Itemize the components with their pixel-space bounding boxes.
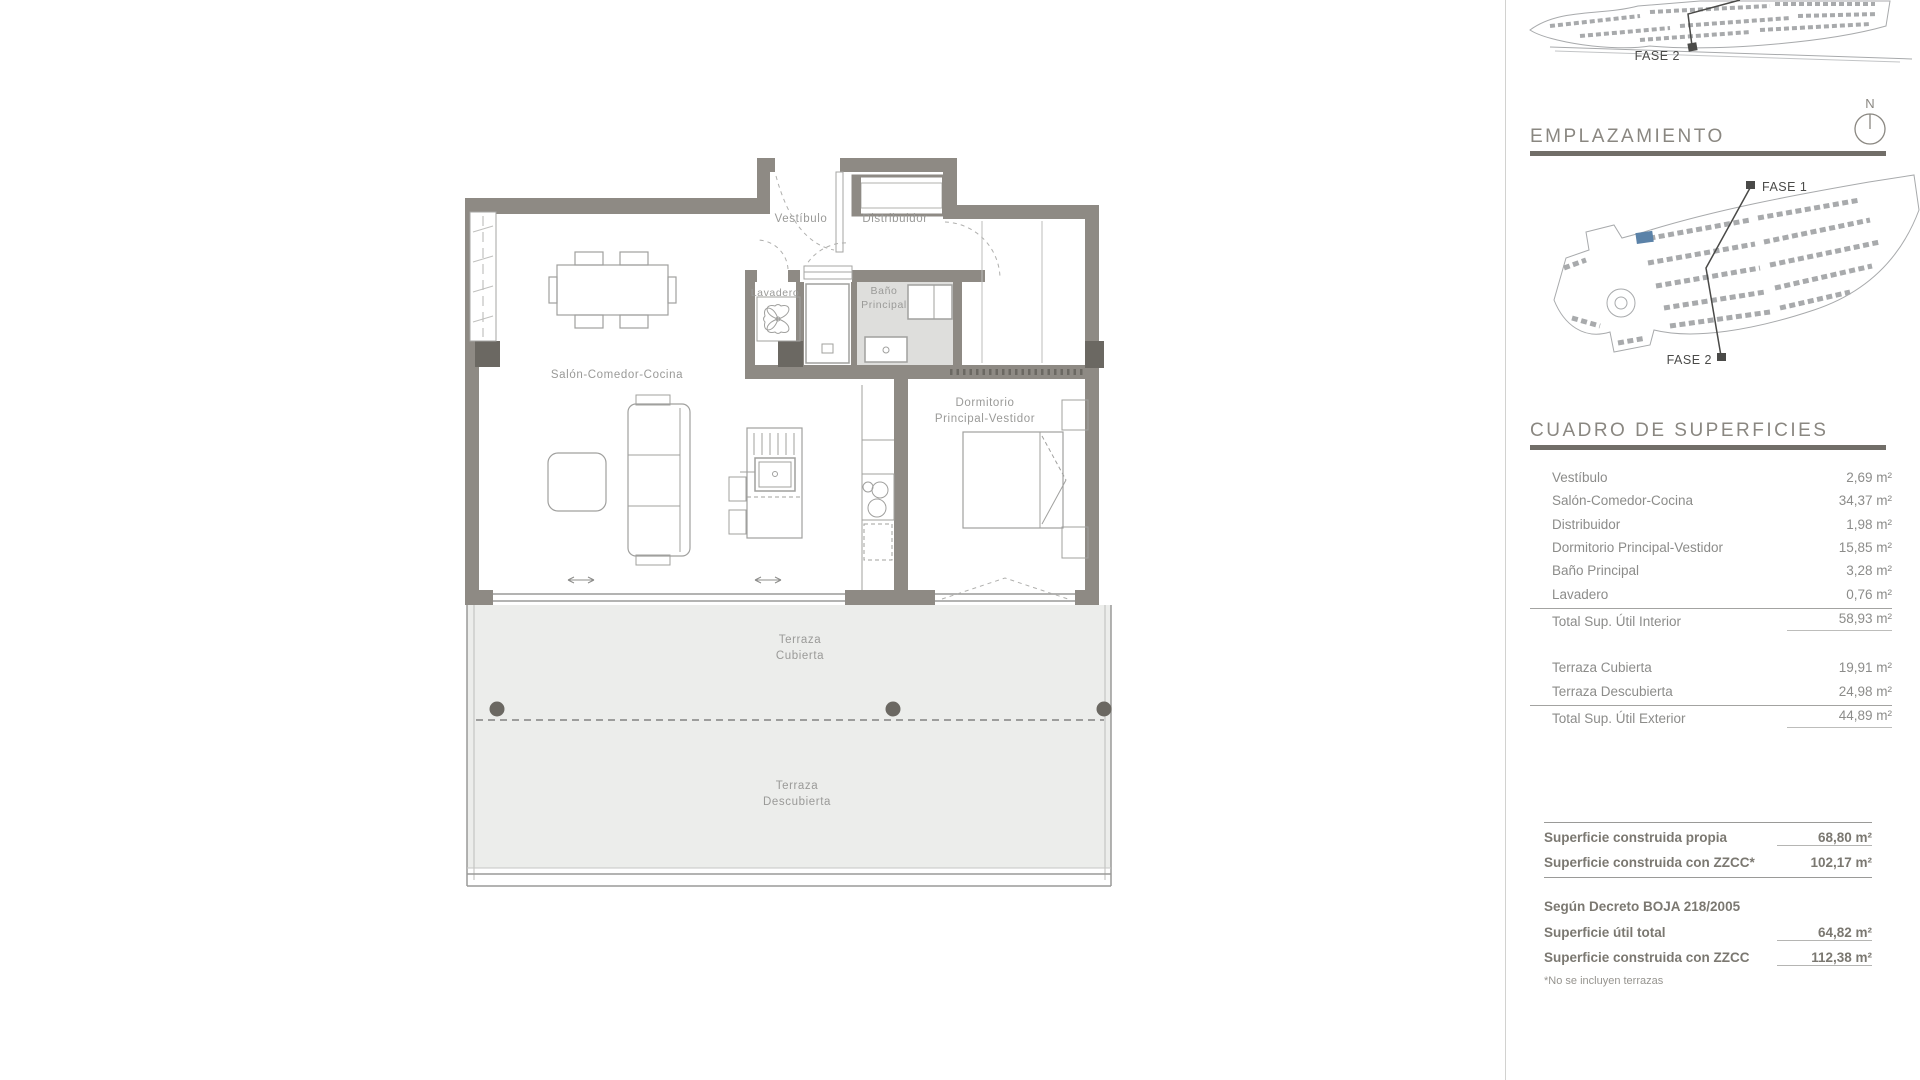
top-site-map: FASE 2	[1520, 0, 1920, 82]
entrance-door	[853, 176, 950, 215]
construida-value: 68,80 m²	[1777, 830, 1872, 846]
site-map-fase2-label: FASE 2	[1667, 353, 1712, 367]
total-label: Total Sup. Útil Interior	[1552, 612, 1681, 629]
decreto-heading: Según Decreto BOJA 218/2005	[1544, 899, 1740, 914]
coffee-table	[548, 453, 606, 511]
label-dormitorio-1: Dormitorio	[955, 397, 1014, 409]
shower-tray	[806, 284, 849, 363]
highlighted-unit	[1635, 231, 1653, 244]
construida-row: Superficie construida propia 68,80 m²	[1544, 825, 1872, 850]
floor-plan: Vestíbulo Distribuidor Lavadero Baño Pri…	[0, 0, 1505, 1080]
row-value: 34,37 m²	[1839, 493, 1892, 508]
row-value: 24,98 m²	[1839, 684, 1892, 699]
kitchen-counter	[862, 385, 894, 590]
decreto-value: 112,38 m²	[1777, 950, 1872, 966]
row-value: 3,28 m²	[1846, 563, 1892, 578]
table-row: Distribuidor 1,98 m²	[1530, 513, 1892, 536]
row-value: 1,98 m²	[1846, 517, 1892, 532]
dining-table	[549, 252, 676, 328]
table-row: Vestíbulo 2,69 m²	[1530, 466, 1892, 489]
label-distribuidor: Distribuidor	[862, 213, 927, 225]
decreto-label: Superficie construida con ZZCC	[1544, 950, 1750, 965]
table-row: Dormitorio Principal-Vestidor 15,85 m²	[1530, 536, 1892, 559]
construida-row: Superficie construida con ZZCC* 102,17 m…	[1544, 850, 1872, 875]
row-value: 19,91 m²	[1839, 660, 1892, 675]
site-map: FASE 1 FASE 2	[1520, 168, 1920, 396]
label-bano-1: Baño	[871, 285, 898, 297]
row-value: 0,76 m²	[1846, 587, 1892, 602]
label-lavadero: Lavadero	[751, 287, 800, 299]
row-label: Terraza Cubierta	[1552, 660, 1652, 675]
row-value: 2,69 m²	[1846, 470, 1892, 485]
label-vestibulo: Vestíbulo	[775, 213, 828, 225]
north-compass: N	[1850, 96, 1890, 156]
cuadro-underline	[1530, 445, 1886, 450]
row-label: Distribuidor	[1552, 517, 1620, 532]
cuadro-title: CUADRO DE SUPERFICIES	[1530, 420, 1828, 442]
vestibulo-door	[776, 172, 843, 252]
terrace-area	[467, 605, 1112, 886]
construida-value: 102,17 m²	[1777, 855, 1872, 870]
sidebar: FASE 2 N EMPLAZAMIENTO	[1506, 0, 1920, 1080]
table-row: Terraza Cubierta 19,91 m²	[1530, 656, 1892, 679]
row-label: Baño Principal	[1552, 563, 1639, 578]
pillars	[475, 341, 1104, 368]
top-map-fase2-label: FASE 2	[1635, 49, 1680, 63]
row-label: Salón-Comedor-Cocina	[1552, 493, 1693, 508]
construida-label: Superficie construida con ZZCC*	[1544, 855, 1755, 870]
surfaces-table: Vestíbulo 2,69 m² Salón-Comedor-Cocina 3…	[1530, 466, 1892, 729]
decreto-value: 64,82 m²	[1777, 925, 1872, 941]
total-label: Total Sup. Útil Exterior	[1552, 709, 1686, 726]
washing-machine	[757, 297, 800, 341]
vestidor-closet	[982, 221, 1042, 363]
left-window	[470, 212, 496, 341]
slide-arrows	[568, 577, 781, 583]
sliding-doors	[493, 594, 1075, 601]
terrace-column	[1097, 702, 1112, 717]
footnote: *No se incluyen terrazas	[1544, 975, 1663, 987]
construida-label: Superficie construida propia	[1544, 830, 1727, 845]
construida-block: Superficie construida propia 68,80 m² Su…	[1544, 822, 1872, 878]
decreto-label: Superficie útil total	[1544, 925, 1666, 940]
decreto-row: Superficie útil total 64,82 m²	[1544, 920, 1872, 945]
total-value: 44,89 m²	[1787, 706, 1892, 728]
plan-sheet: Vestíbulo Distribuidor Lavadero Baño Pri…	[0, 0, 1920, 1080]
label-terraza-descubierta-1: Terraza	[776, 780, 819, 792]
table-row: Lavadero 0,76 m²	[1530, 582, 1892, 605]
table-row: Salón-Comedor-Cocina 34,37 m²	[1530, 489, 1892, 512]
north-label: N	[1850, 96, 1890, 111]
bedroom-window-swing	[942, 578, 1068, 599]
table-row: Baño Principal 3,28 m²	[1530, 559, 1892, 582]
row-label: Dormitorio Principal-Vestidor	[1552, 540, 1723, 555]
label-terraza-descubierta-2: Descubierta	[763, 796, 831, 808]
terrace-column	[490, 702, 505, 717]
label-bano-2: Principal	[861, 299, 907, 311]
sofa	[628, 395, 690, 565]
label-terraza-cubierta-1: Terraza	[779, 634, 822, 646]
table-row: Terraza Descubierta 24,98 m²	[1530, 679, 1892, 702]
label-terraza-cubierta-2: Cubierta	[776, 650, 824, 662]
total-value: 58,93 m²	[1787, 609, 1892, 631]
kitchen-island	[729, 428, 802, 538]
emplazamiento-underline	[1530, 151, 1886, 156]
total-interior-row: Total Sup. Útil Interior 58,93 m²	[1530, 608, 1892, 632]
total-exterior-row: Total Sup. Útil Exterior 44,89 m²	[1530, 705, 1892, 729]
lavadero-door-arc	[757, 240, 788, 269]
terrace-column	[886, 702, 901, 717]
label-dormitorio-2: Principal-Vestidor	[935, 413, 1035, 425]
row-value: 15,85 m²	[1839, 540, 1892, 555]
decreto-block: Superficie útil total 64,82 m² Superfici…	[1544, 920, 1872, 970]
emplazamiento-title: EMPLAZAMIENTO	[1530, 126, 1725, 148]
label-salon: Salón-Comedor-Cocina	[551, 369, 683, 381]
row-label: Vestíbulo	[1552, 470, 1608, 485]
row-label: Lavadero	[1552, 587, 1608, 602]
row-label: Terraza Descubierta	[1552, 684, 1673, 699]
compass-icon	[1850, 111, 1890, 151]
decreto-row: Superficie construida con ZZCC 112,38 m²	[1544, 945, 1872, 970]
site-map-fase1-label: FASE 1	[1762, 180, 1807, 194]
